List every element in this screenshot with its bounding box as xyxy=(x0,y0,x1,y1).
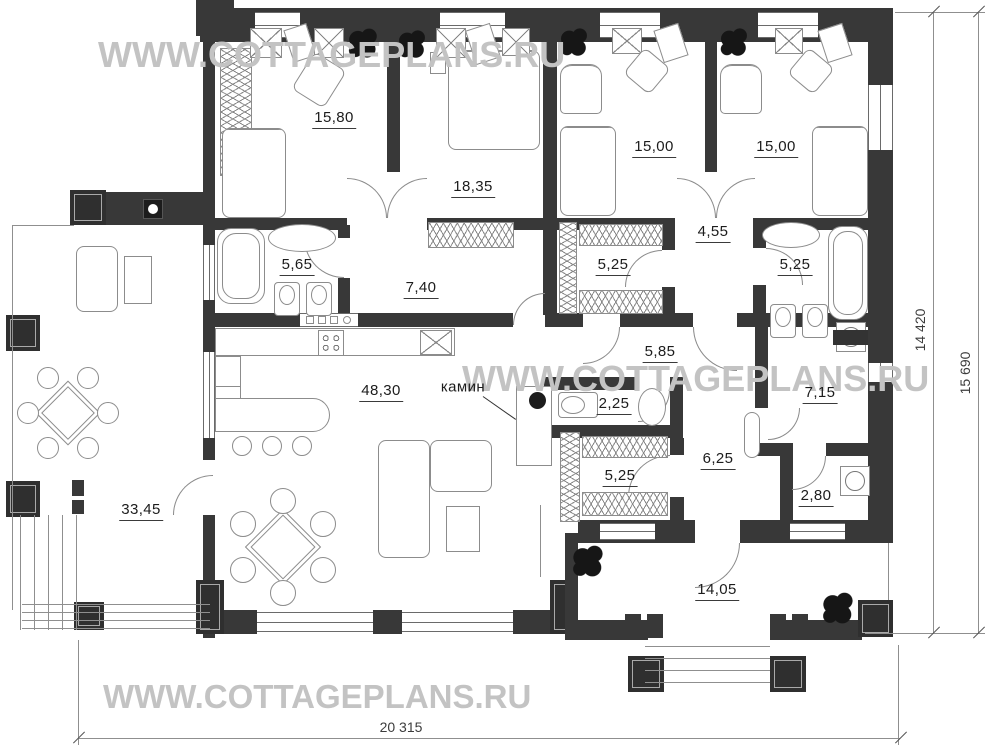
wall-h443-b xyxy=(826,443,893,456)
fireplace-label: камин xyxy=(439,379,487,398)
extension-line xyxy=(898,645,899,745)
dimension-bottom: 20 315 xyxy=(380,719,423,735)
terrace-step-s xyxy=(22,604,210,605)
terrace-step-s xyxy=(22,612,210,613)
porch-step-pier-1 xyxy=(625,614,641,638)
room-label-wardrobe-bottom: 5,25 xyxy=(603,467,638,487)
wardrobe-rack xyxy=(582,492,668,516)
chair xyxy=(17,402,39,424)
chair xyxy=(77,437,99,459)
window-wardrobe-bottom xyxy=(600,523,655,540)
room-label-corridor: 5,85 xyxy=(643,343,678,363)
wall-bath-left xyxy=(338,225,350,238)
chair xyxy=(310,557,336,583)
door-arc-bed1 xyxy=(347,178,387,218)
window-living-2 xyxy=(402,612,513,632)
terrace-rail-post-2 xyxy=(72,500,84,514)
pier-porch-step-left xyxy=(628,656,664,692)
chair xyxy=(270,580,296,606)
sill-item xyxy=(318,316,326,324)
kitchen-island xyxy=(215,398,330,432)
wall-wardrobeB-r-b xyxy=(670,497,684,525)
porch-step-line xyxy=(645,646,770,647)
door-arc-bed2 xyxy=(387,178,427,218)
extension-line xyxy=(865,633,985,634)
pier-terrace-nw xyxy=(70,190,106,225)
toilet xyxy=(802,304,828,338)
terrace-step xyxy=(20,515,21,630)
room-label-entry-hall: 6,25 xyxy=(701,450,736,470)
bathtub xyxy=(217,228,265,304)
pier-terrace-sw xyxy=(74,602,104,630)
stove xyxy=(318,330,344,356)
wardrobe-rack xyxy=(579,224,663,246)
door-leaf-porch xyxy=(540,505,541,577)
porch-right-edge xyxy=(888,543,889,603)
wall-h313-d xyxy=(620,313,693,327)
room-label-porch: 14,05 xyxy=(695,581,739,601)
bed xyxy=(222,128,286,218)
chair xyxy=(230,557,256,583)
window-left-2 xyxy=(203,352,215,438)
window-living-1 xyxy=(257,612,373,632)
room-label-laundry: 2,80 xyxy=(799,487,834,507)
coffee-table xyxy=(446,506,480,552)
hanger-column xyxy=(560,432,580,522)
wall-bed3-bed4 xyxy=(705,42,717,172)
chair xyxy=(230,511,256,537)
room-label-bedroom-mid: 15,00 xyxy=(632,138,676,158)
chair xyxy=(37,437,59,459)
bed xyxy=(560,126,616,216)
porch-step-line xyxy=(645,670,770,671)
entrance-door-gap xyxy=(695,520,740,543)
porch-step-line xyxy=(645,658,770,659)
bar-stool xyxy=(232,436,252,456)
terrace-sofa xyxy=(76,246,118,312)
terrace-edge-left xyxy=(12,225,13,610)
wall-wardrobe-r-a xyxy=(662,218,675,250)
hanger-column xyxy=(559,222,577,314)
pier-porch-right xyxy=(858,600,893,637)
door-arc-storage xyxy=(768,408,800,440)
room-label-bedroom1: 15,80 xyxy=(312,109,356,129)
sofa-section xyxy=(430,440,492,492)
room-label-storage: 7,15 xyxy=(803,384,838,404)
fridge xyxy=(420,330,452,355)
door-arc-bed3 xyxy=(677,178,716,218)
wall-bathR-l-b xyxy=(753,285,766,315)
door-arc-terrace xyxy=(173,475,213,515)
toilet xyxy=(306,282,332,316)
wall-wardrobe-r-b xyxy=(662,287,675,315)
room-label-bath-small: 2,25 xyxy=(597,395,632,415)
window-left-1 xyxy=(203,245,215,300)
door-arc-bed4 xyxy=(716,178,755,218)
cabinet xyxy=(744,412,760,458)
bed xyxy=(812,126,868,216)
plant xyxy=(718,26,750,58)
window-laundry xyxy=(790,523,845,540)
room-label-living: 48,30 xyxy=(359,382,403,402)
column-symbol xyxy=(143,199,163,219)
wall-top-corner-block xyxy=(196,0,234,36)
dresser xyxy=(612,28,642,54)
chair xyxy=(310,511,336,537)
extension-line xyxy=(895,12,985,13)
bathtub xyxy=(828,226,868,320)
sill-item xyxy=(330,316,338,324)
wardrobe-rack xyxy=(582,436,668,458)
wardrobe-rack xyxy=(579,290,663,314)
dimension-line-bottom xyxy=(78,738,900,739)
armchair xyxy=(720,64,762,114)
room-label-hall-top: 7,40 xyxy=(404,279,439,299)
terrace-step-s xyxy=(22,620,210,621)
chair xyxy=(270,488,296,514)
porch-step-line xyxy=(645,682,770,683)
porch-step-pier-2 xyxy=(647,614,663,638)
wall-h313-c xyxy=(545,313,583,327)
extension-line xyxy=(78,640,79,745)
chair xyxy=(97,402,119,424)
wall-bed2-bed3 xyxy=(543,42,557,315)
washing-machine xyxy=(840,466,870,496)
shoe-bench xyxy=(428,222,514,248)
dimension-line-outer xyxy=(978,12,979,633)
floor-plan-canvas: 15,80 18,35 15,00 15,00 5,65 7,40 5,25 4… xyxy=(0,0,989,750)
sill-item xyxy=(306,316,314,324)
wall-wardrobeB-r-a xyxy=(670,438,684,455)
wall-bottom-left-b xyxy=(373,610,402,634)
room-label-terrace: 33,45 xyxy=(119,501,163,521)
sill-item xyxy=(343,316,351,324)
door-arc-wardrobe-top xyxy=(625,250,662,287)
porch-step-pier-4 xyxy=(792,614,808,638)
window-right-bedroom xyxy=(868,85,893,150)
room-label-master: 18,35 xyxy=(451,178,495,198)
sink xyxy=(762,222,820,248)
pier-porch-step-right xyxy=(770,656,806,692)
shrub xyxy=(570,543,606,579)
toilet xyxy=(770,304,796,338)
watermark-top: WWW.COTTAGEPLANS.RU xyxy=(98,34,565,76)
terrace-edge-top xyxy=(12,225,74,226)
room-label-bathroom-left: 5,65 xyxy=(280,256,315,276)
wall-h313-b xyxy=(358,313,513,327)
sink xyxy=(268,224,336,252)
bar-stool xyxy=(262,436,282,456)
console-table xyxy=(833,330,868,345)
terrace-step-s xyxy=(22,628,210,629)
door-arc-laundry xyxy=(792,456,826,490)
dimension-line-inner xyxy=(933,12,934,633)
pier-living-sw xyxy=(196,580,224,634)
chair xyxy=(37,367,59,389)
porch-step-pier-3 xyxy=(770,614,786,638)
room-label-wardrobe-top: 5,25 xyxy=(596,256,631,276)
room-label-bedroom-right: 15,00 xyxy=(754,138,798,158)
sofa xyxy=(378,440,430,558)
room-label-bathroom-right: 5,25 xyxy=(778,256,813,276)
terrace-rail-post-1 xyxy=(72,480,84,496)
terrace-table xyxy=(124,256,152,304)
room-label-hall-bedrooms: 4,55 xyxy=(696,223,731,243)
door-arc-hall-living xyxy=(513,293,545,325)
watermark-bottom: WWW.COTTAGEPLANS.RU xyxy=(103,678,531,716)
armchair xyxy=(560,64,602,114)
watermark-middle: WWW.COTTAGEPLANS.RU xyxy=(462,358,929,400)
terrace-dining-table xyxy=(35,380,100,445)
toilet xyxy=(274,282,300,316)
shrub xyxy=(820,590,856,626)
chair xyxy=(77,367,99,389)
dimension-right-outer: 15 690 xyxy=(957,333,973,413)
dresser xyxy=(775,28,803,54)
wall-bath-left2 xyxy=(338,278,350,315)
bar-stool xyxy=(292,436,312,456)
